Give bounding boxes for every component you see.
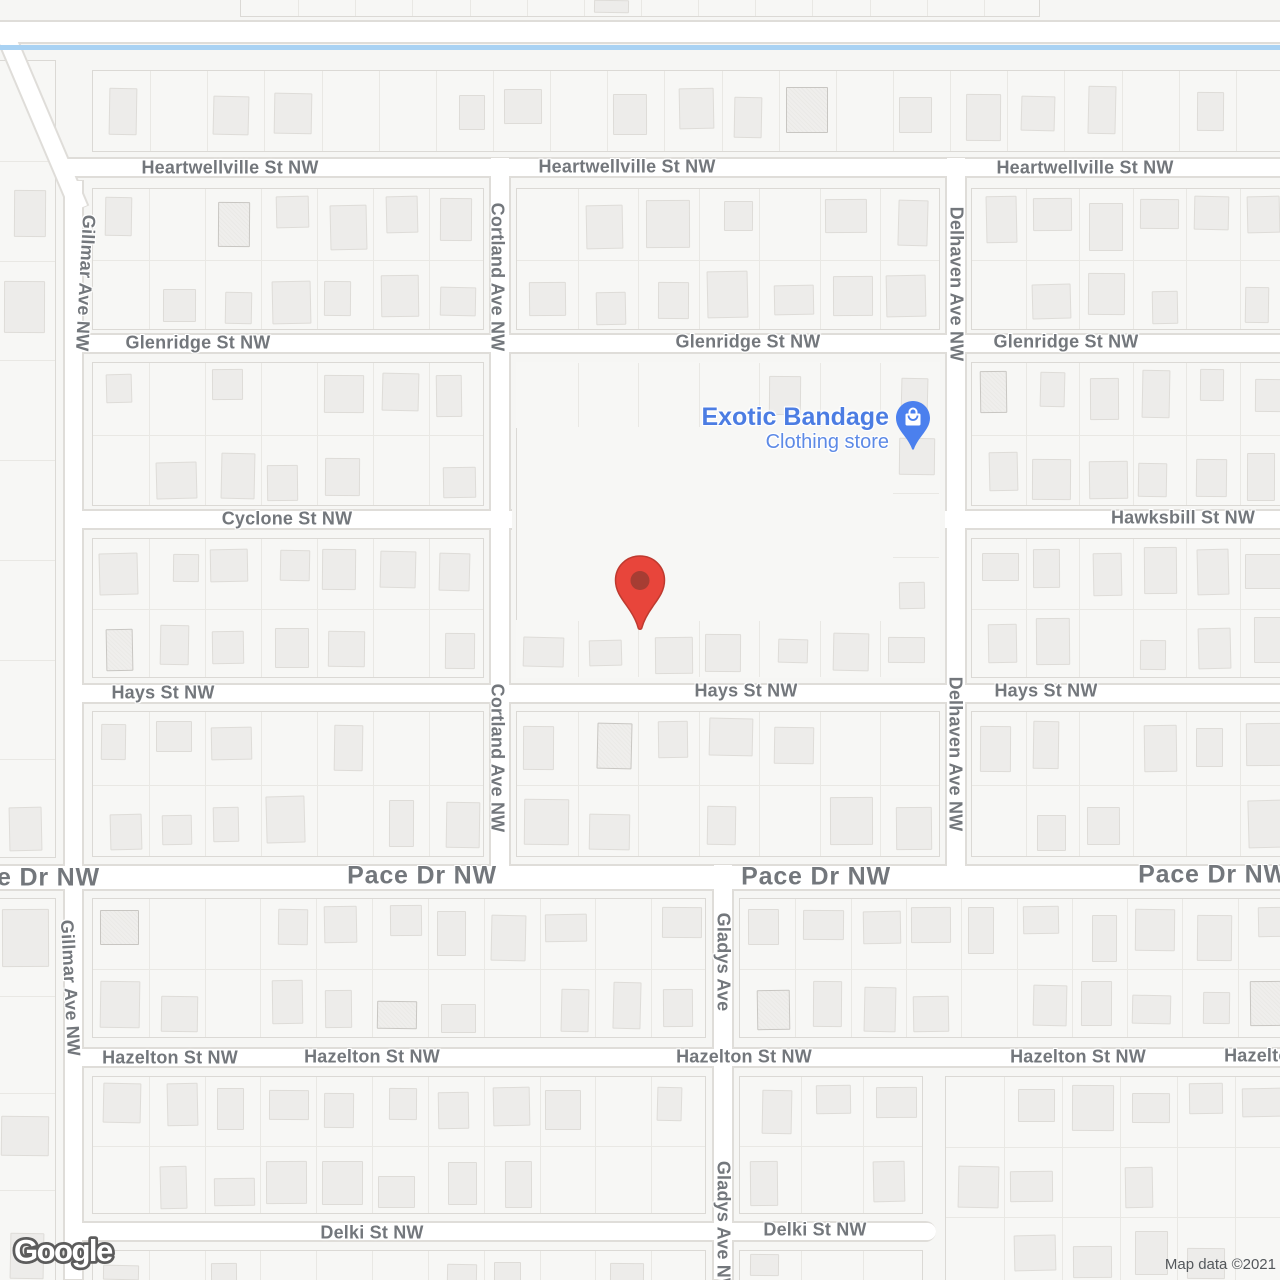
google-logo[interactable]: Google — [8, 1230, 134, 1272]
shopping-bag-pin-icon[interactable] — [894, 400, 932, 450]
street-label: Cortland Ave NW — [487, 203, 508, 352]
street-label: Heartwellville St NW — [538, 157, 715, 178]
street-label: Delki St NW — [763, 1220, 866, 1241]
street-label: Hawksbill St NW — [1111, 508, 1255, 529]
poi-title[interactable]: Exotic Bandage — [701, 404, 889, 431]
svg-text:Google: Google — [14, 1233, 113, 1268]
street-label: Glenridge St NW — [675, 332, 820, 353]
poi-subtitle: Clothing store — [701, 431, 889, 454]
street-label: Hazelton St NW — [676, 1047, 812, 1068]
street-label: Cyclone St NW — [222, 509, 353, 530]
street-label: Hazelton St NW — [102, 1048, 238, 1069]
street-label: Hays St NW — [111, 683, 214, 704]
street-label: Heartwellville St NW — [996, 158, 1173, 179]
street-label: Delhaven Ave NW — [946, 207, 967, 362]
street-label: Heartwellville St NW — [141, 158, 318, 179]
street-label: Pace Dr NW — [0, 864, 100, 893]
poi-label-exotic-bandage[interactable]: Exotic Bandage Clothing store — [701, 404, 889, 454]
street-label: Pace Dr NW — [1138, 861, 1280, 890]
street-label: Glenridge St NW — [125, 333, 270, 354]
street-label: Pace Dr NW — [741, 863, 891, 892]
street-label: Hazelton St NW — [304, 1047, 440, 1068]
street-label: Cortland Ave NW — [487, 684, 508, 833]
street-label: Delki St NW — [320, 1223, 423, 1244]
street-label: Gladys Ave — [713, 913, 734, 1012]
street-label: Hays St NW — [694, 681, 797, 702]
street-label: Gillmar Ave NW — [56, 919, 84, 1056]
street-label: Pace Dr NW — [347, 862, 497, 891]
street-label: Gillmar Ave NW — [71, 214, 99, 351]
street-label: Hays St NW — [994, 681, 1097, 702]
street-label: Hazelton St NW — [1224, 1046, 1280, 1067]
map-canvas[interactable]: Heartwellville St NWHeartwellville St NW… — [0, 0, 1280, 1280]
street-label: Hazelton St NW — [1010, 1047, 1146, 1068]
street-label: Delhaven Ave NW — [945, 677, 966, 832]
red-map-pin[interactable] — [613, 554, 667, 638]
street-labels-layer: Heartwellville St NWHeartwellville St NW… — [0, 0, 1280, 1280]
street-label: Gladys Ave NW — [713, 1161, 734, 1280]
map-attribution: Map data ©2021 — [1165, 1256, 1276, 1273]
street-label: Glenridge St NW — [993, 332, 1138, 353]
